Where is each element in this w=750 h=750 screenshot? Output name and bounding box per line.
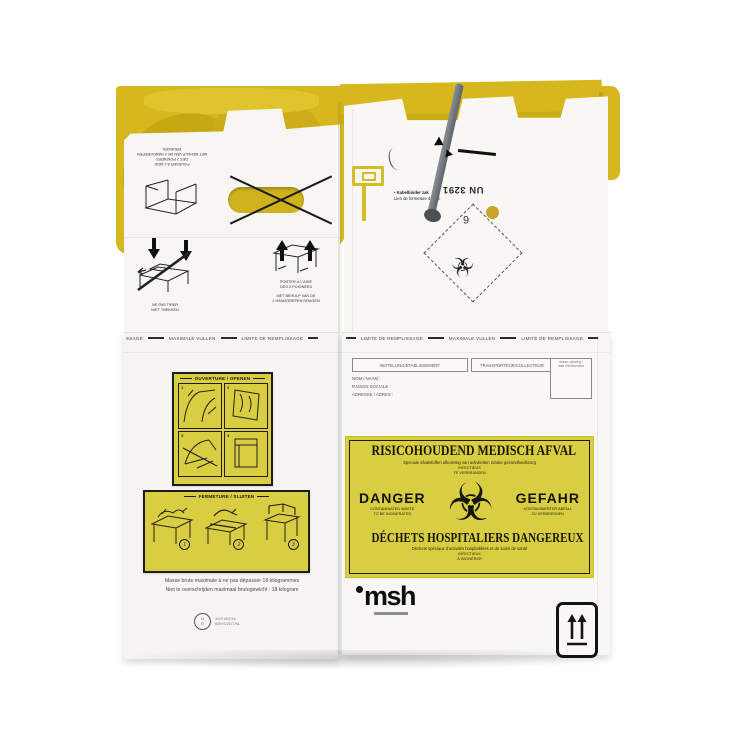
no-pull-text: NE PAS TIRER NIET TREKKEN [136,303,194,313]
danger-label: RISICOHOUDEND MEDISCH AFVAL Speciale afv… [345,436,594,578]
push-instruction: POUSSER À L'AIDE DES 2 POIGNÉES MET BEHU… [136,146,208,262]
no-pull-diagram [136,248,194,294]
danger-subtitle-nl: Speciale afvalstoffen afkomstig van acti… [350,460,589,465]
product-photo-medical-waste-box: SSAGE MAXIMALE VULLEN LIMITE DE REMPLISS… [0,0,750,750]
open-step-3: 3 [178,431,222,477]
close-step-3: 3 [257,502,305,554]
fill-limit-text: LIMITE DE REMPLISSAGE [521,336,583,341]
form-header-date: datum ophaling / date d'enlèvement [550,358,592,399]
push-instruction-text: POUSSER À L'AIDE DES 2 POIGNÉES MET BEHU… [136,146,208,166]
un-circle-icon: u n [194,613,211,630]
max-weight-nl: Niet te overschrijden maximaal brutogewi… [126,586,338,595]
max-weight-note: Masse brute maximale à ne pas dépasser 1… [126,577,338,595]
fill-limit-dash [148,337,164,339]
up-arrow-icon [304,240,316,261]
fill-limit-dash [346,337,356,339]
fill-limit-line-right: LIMITE DE REMPLISSAGE MAXIMALE VULLEN LI… [346,334,606,342]
carry-instruction: PORTER À L'AIDE DES 2 POIGNÉES MET BEHUL… [268,240,324,304]
fold-crease [597,336,598,652]
danger-subtitle-fr: Déchets spéciaux d'activités hospitalièr… [350,546,589,551]
biohazard-icon: ☣ [447,478,494,528]
close-step-3-diagram [257,502,305,546]
fill-limit-dash [221,337,237,339]
opening-panel-title: OUVERTURE / OPENEN [195,376,251,381]
un-cert-code: 4G/Y18/S/16 B/BVS/2677/NL [215,617,240,627]
close-step-1-diagram [148,502,196,546]
msh-logo: msh [356,583,415,610]
fill-limit-line-left: SSAGE MAXIMALE VULLEN LIMITE DE REMPLISS… [126,334,336,342]
danger-title-fr: DÉCHETS HOSPITALIERS DANGEREUX [372,530,568,546]
danger-de-block: GEFAHR KONTAMINIERTER ABFALL ZU VERBRENN… [516,490,580,516]
fill-limit-text: MAXIMALE VULLEN [449,336,496,341]
form-header-establishment: INSTELLING/ETABLISSEMENT [352,358,468,372]
danger-title-nl: RISICOHOUDEND MEDISCH AFVAL [372,443,568,460]
fold-crease [352,108,353,332]
fill-limit-text: MAXIMALE VULLEN [169,336,216,341]
opening-instructions-panel: OUVERTURE / OPENEN 1 2 3 [172,372,273,486]
open-step-3-diagram [179,432,221,474]
closing-panel-title: FERMETURE / SLUITEN [199,494,255,499]
drop-shadow [118,650,616,670]
this-way-up-icon [556,602,598,658]
bag-fold [144,88,319,114]
handle-slot [228,187,304,213]
cable-tie-icon-stem [362,185,366,221]
cable-tie-icon [352,166,384,186]
danger-en-block: DANGER CONTAMINATED WASTE TO BE INCINERA… [359,490,426,516]
carry-text: PORTER À L'AIDE DES 2 POIGNÉES MET BEHUL… [268,280,324,304]
open-step-4: 4 [224,431,268,477]
cable-tie-clasp [445,149,453,158]
closing-instructions-panel: FERMETURE / SLUITEN 1 2 [143,490,310,573]
push-diagram [138,172,204,230]
un-3291-marking: UN 3291 [436,184,490,195]
fill-limit-dash [500,337,516,339]
fill-limit-text: SSAGE [126,336,143,341]
biohazard-icon: ☣ [451,252,474,282]
open-step-1: 1 [178,383,222,429]
close-step-2-diagram [202,502,250,546]
yellow-dot [486,206,499,219]
max-weight-fr: Masse brute maximale à ne pas dépasser 1… [126,577,338,586]
fill-limit-dash [588,337,598,339]
fill-limit-dash [428,337,444,339]
open-step-4-diagram [225,432,267,474]
close-step-1: 1 [148,502,196,554]
fill-limit-dash [308,337,318,339]
fill-limit-text: LIMITE DE REMPLISSAGE [361,336,423,341]
un-packaging-mark: u n 4G/Y18/S/16 B/BVS/2677/NL [194,613,240,630]
open-step-2-diagram [225,384,267,426]
close-step-2: 2 [202,502,250,554]
transport-form: INSTELLING/ETABLISSEMENT TRANSPORTEUR/CO… [352,358,592,399]
up-arrow-icon [276,240,288,261]
logo-dot-icon [356,586,363,593]
open-step-1-diagram [179,384,221,426]
danger-infect-fr: INFECTIEUX À INCINÉRER [350,552,589,561]
fill-limit-text: LIMITE DE REMPLISSAGE [242,336,304,341]
fold-crease [124,352,610,353]
form-header-transporter: TRANSPORTEUR/COLLECTEUR [471,358,553,372]
panel-seam-shadow [338,102,343,654]
logo-text: msh [364,583,415,610]
logo-tagline-bar [374,612,408,615]
hazard-class-number: 6 [463,213,469,225]
no-pull-instruction: NE PAS TIRER NIET TREKKEN [136,248,194,313]
open-step-2: 2 [224,383,268,429]
